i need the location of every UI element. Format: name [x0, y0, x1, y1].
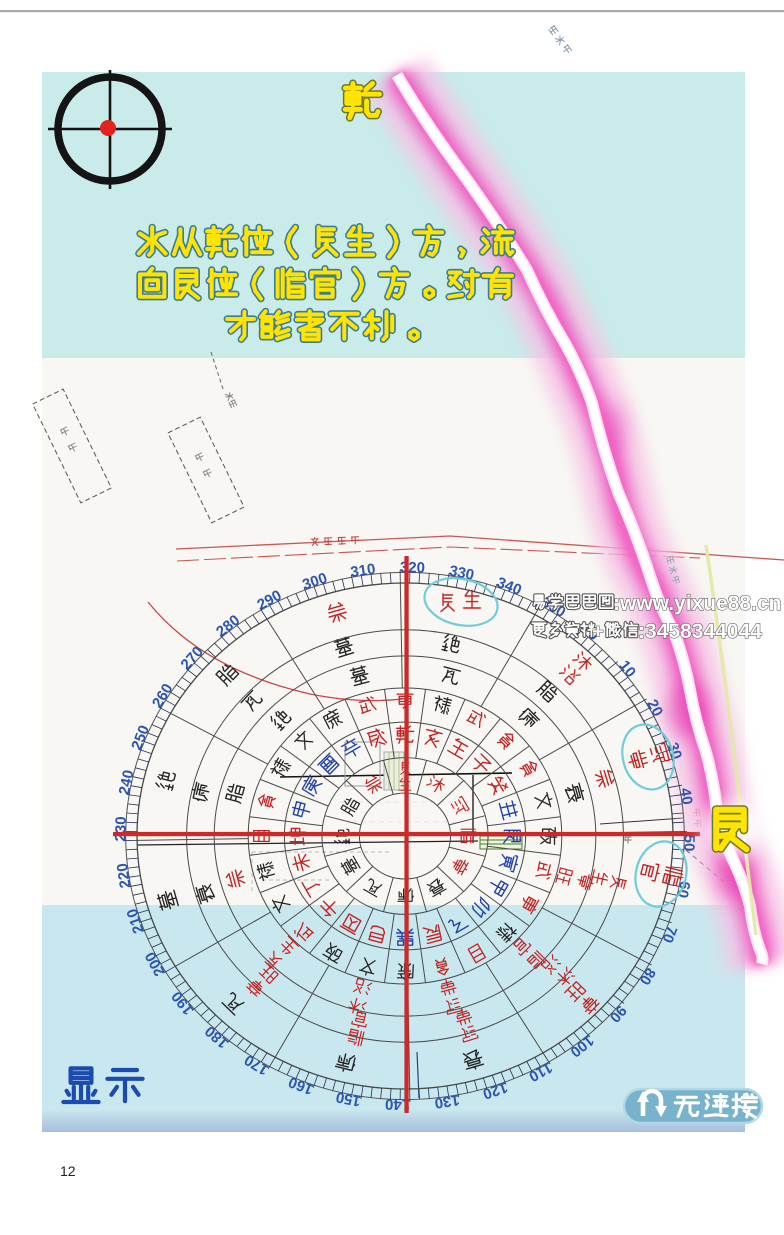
svg-text::3458344044: :3458344044 [638, 620, 762, 643]
svg-text:50: 50 [680, 834, 697, 851]
svg-text:+: + [592, 621, 604, 643]
svg-text:12: 12 [60, 1163, 76, 1179]
svg-text:320: 320 [400, 559, 425, 577]
svg-text::www.yixue88.cn: :www.yixue88.cn [613, 592, 781, 615]
svg-text:230: 230 [112, 816, 130, 841]
svg-text:40: 40 [676, 787, 695, 806]
